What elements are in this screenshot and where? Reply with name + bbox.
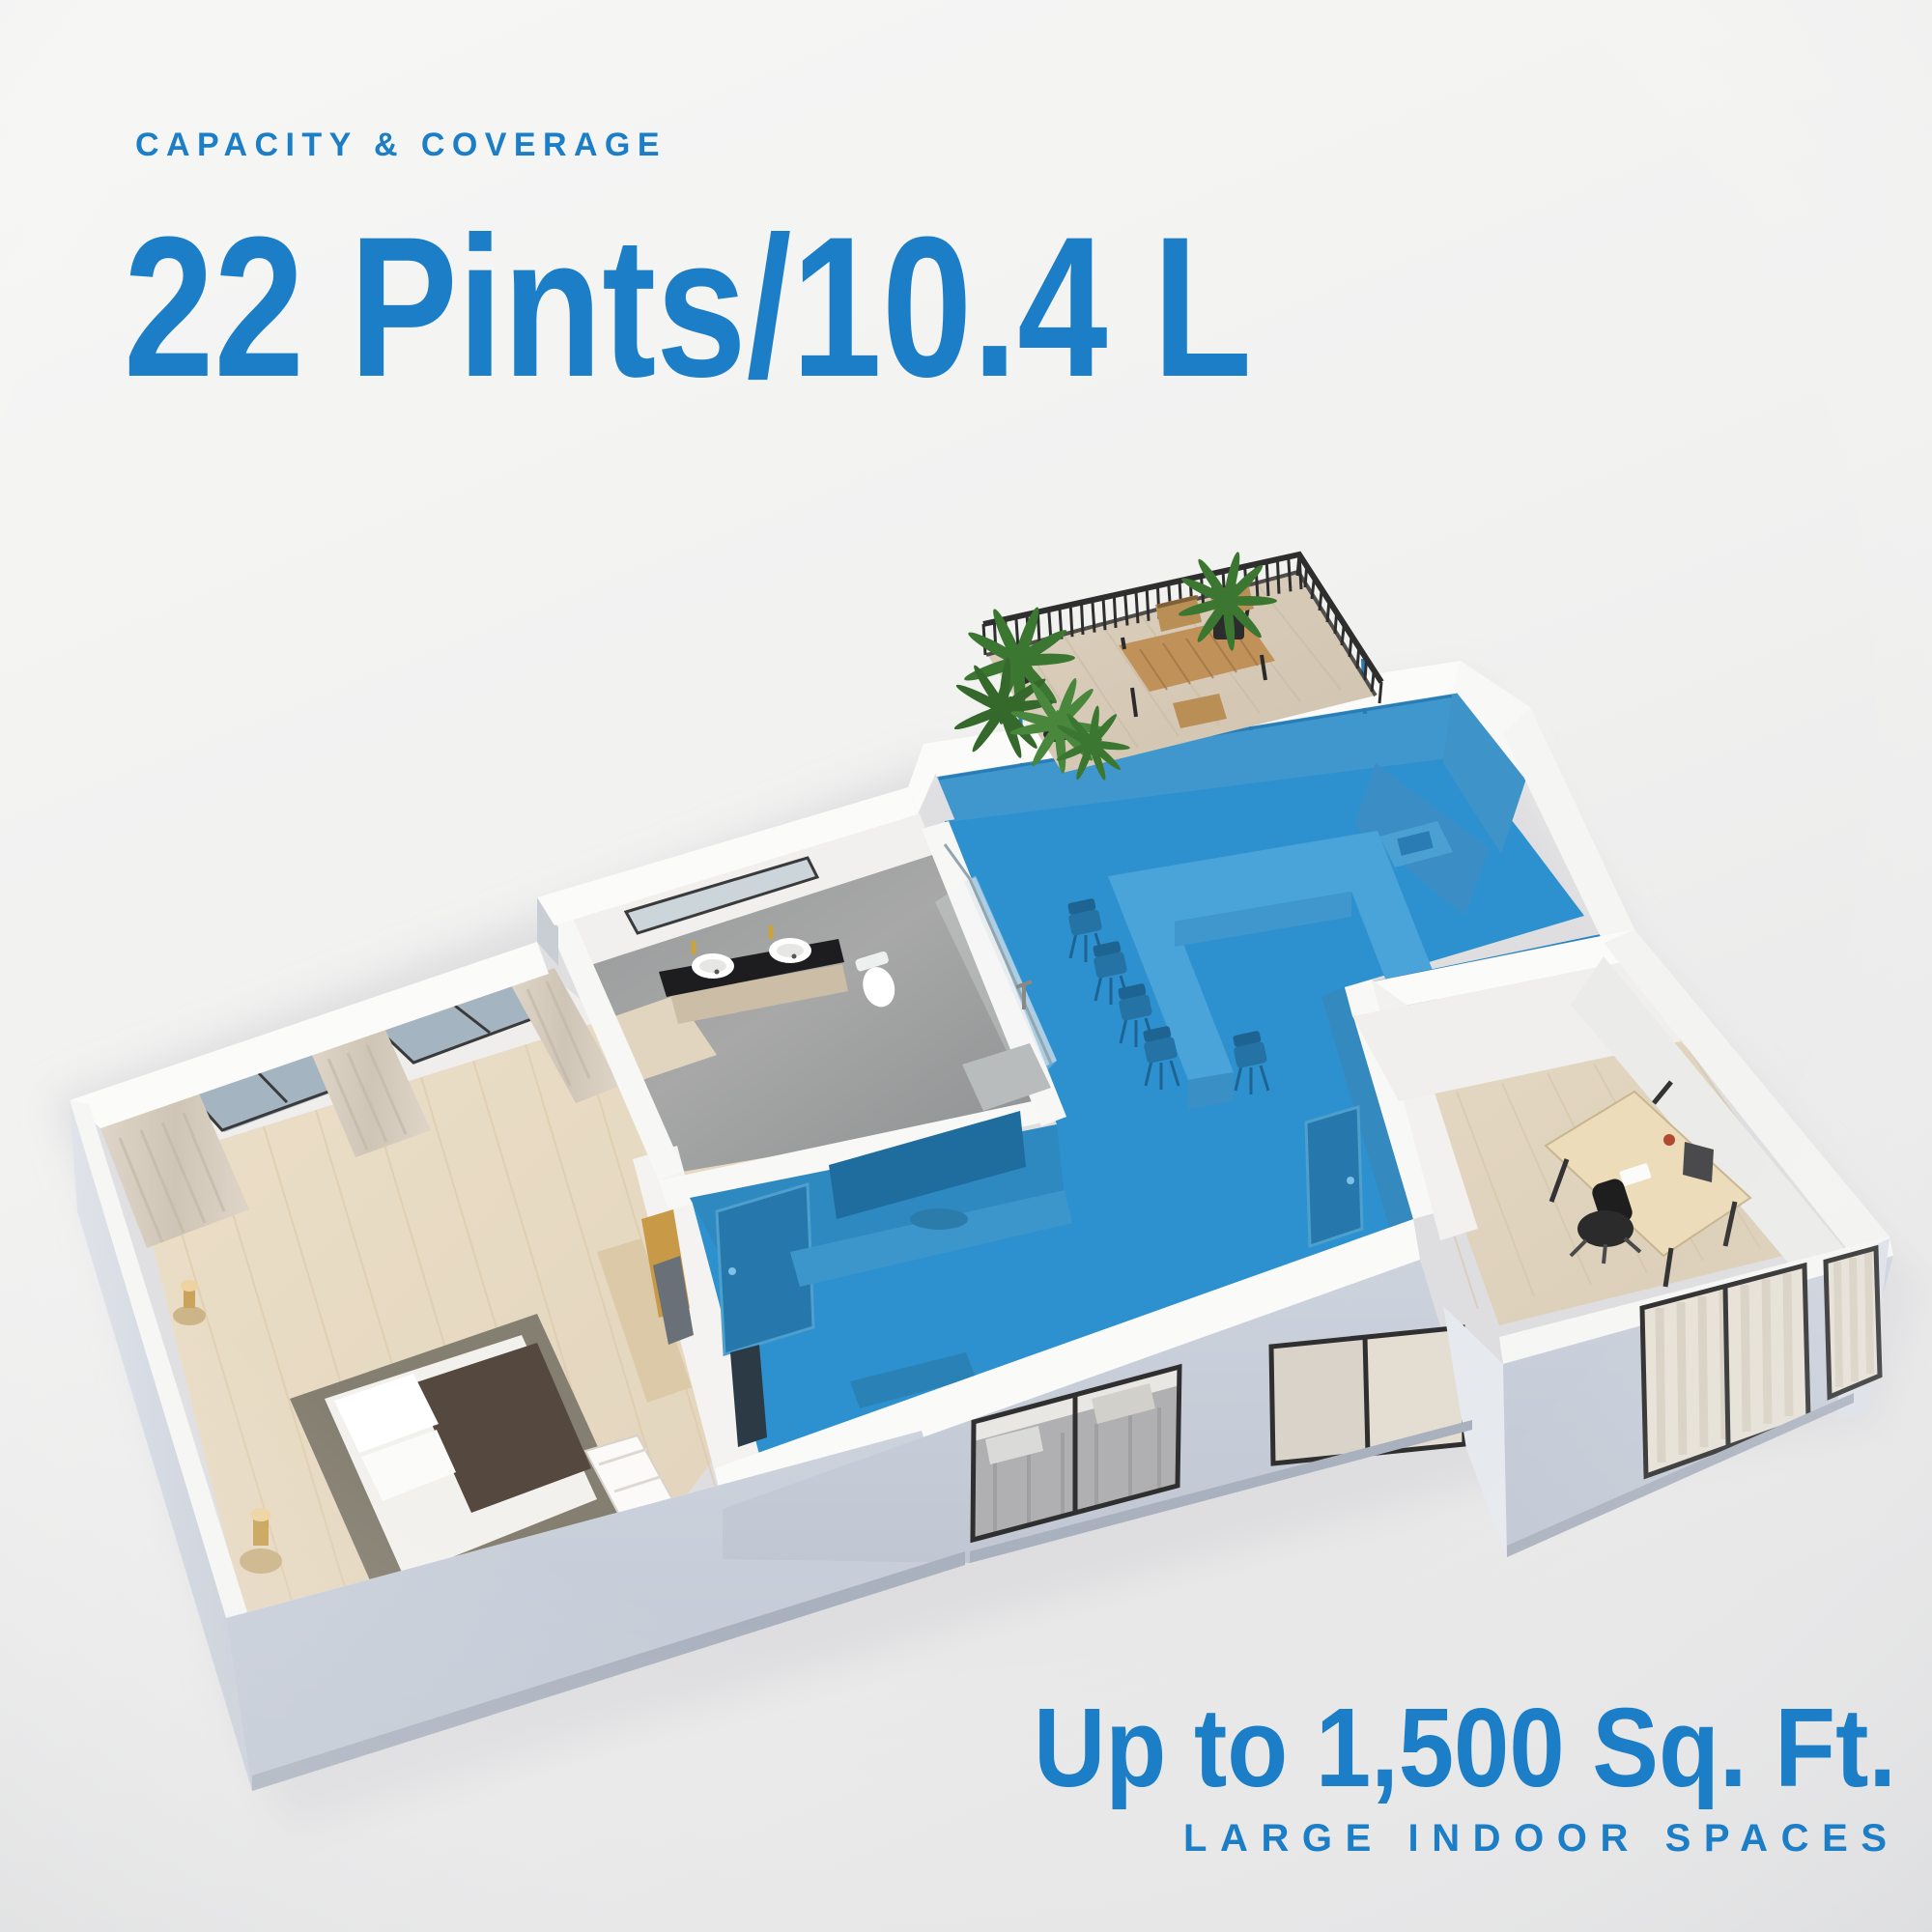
svg-text:Up to 1,500 Sq. Ft.: Up to 1,500 Sq. Ft. [1034, 1685, 1896, 1810]
svg-text:LARGE INDOOR SPACES: LARGE INDOOR SPACES [1183, 1817, 1895, 1860]
svg-text:CAPACITY & COVERAGE: CAPACITY & COVERAGE [135, 127, 667, 163]
svg-text:22 Pints/10.4 L: 22 Pints/10.4 L [124, 195, 1252, 418]
